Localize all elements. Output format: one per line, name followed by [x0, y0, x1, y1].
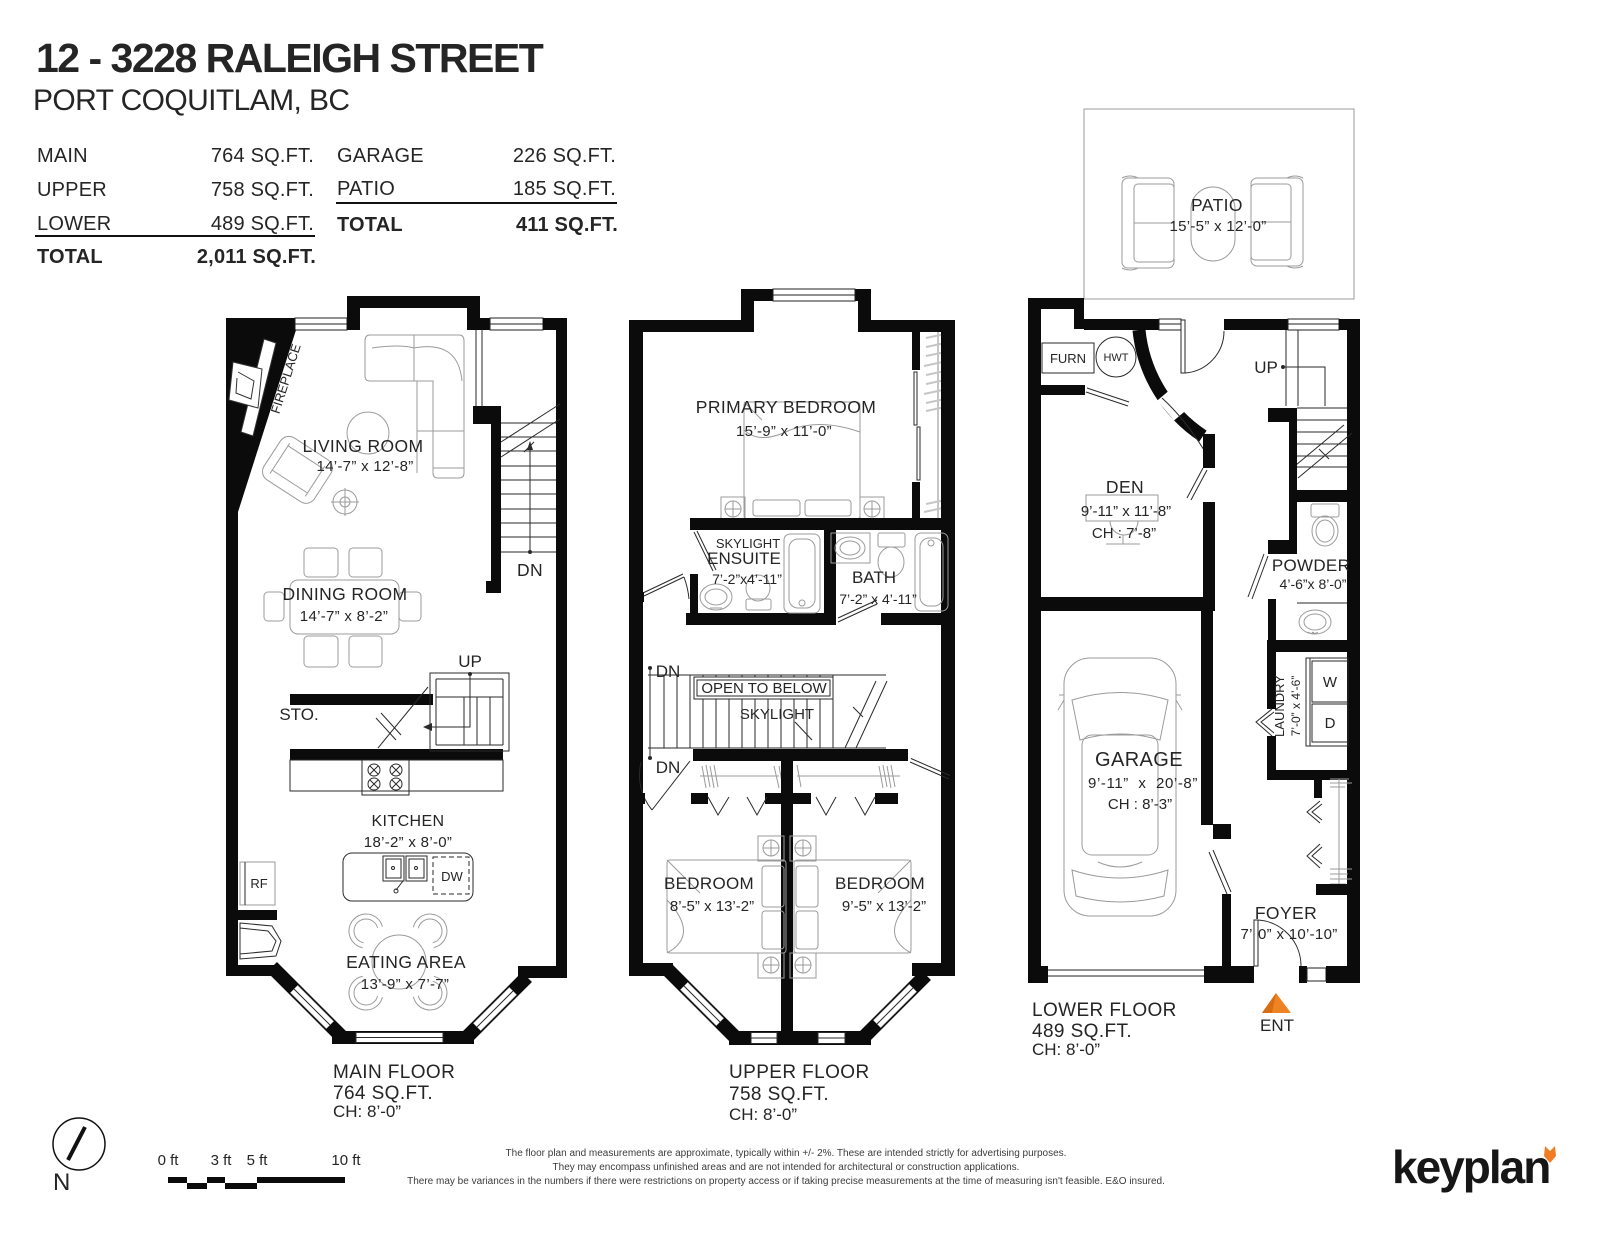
svg-text:BEDROOM: BEDROOM: [664, 874, 754, 893]
svg-text:DN: DN: [656, 662, 681, 681]
svg-text:There may be variances in the: There may be variances in the numbers if…: [407, 1176, 1165, 1187]
svg-text:8’-5” x 13’-2”: 8’-5” x 13’-2”: [670, 898, 754, 915]
svg-text:EATING AREA: EATING AREA: [346, 952, 466, 972]
svg-text:764 SQ.FT.: 764 SQ.FT.: [211, 145, 314, 167]
svg-text:15’-9” x 11’-0”: 15’-9” x 11’-0”: [736, 423, 832, 440]
svg-text:UP: UP: [1254, 358, 1278, 377]
svg-text:489 SQ.FT.: 489 SQ.FT.: [211, 213, 314, 235]
svg-text:POWDER: POWDER: [1272, 556, 1350, 575]
svg-text:15’-5” x 12’-0”: 15’-5” x 12’-0”: [1169, 218, 1266, 235]
svg-text:7’-2” x 4’-11”: 7’-2” x 4’-11”: [839, 591, 917, 607]
svg-text:PATIO: PATIO: [1191, 195, 1243, 215]
svg-text:10 ft: 10 ft: [331, 1152, 361, 1169]
svg-text:9’-11” x 11’-8”: 9’-11” x 11’-8”: [1081, 503, 1171, 520]
svg-text:N: N: [53, 1169, 70, 1196]
svg-text:BATH: BATH: [852, 568, 896, 587]
svg-text:LIVING ROOM: LIVING ROOM: [302, 436, 423, 456]
svg-text:LAUNDRY: LAUNDRY: [1272, 675, 1287, 737]
svg-text:DINING ROOM: DINING ROOM: [283, 584, 408, 604]
svg-text:MAIN: MAIN: [37, 145, 88, 167]
svg-text:758 SQ.FT.: 758 SQ.FT.: [729, 1084, 829, 1105]
svg-text:CH: 8’-0”: CH: 8’-0”: [729, 1105, 797, 1124]
svg-text:LOWER: LOWER: [37, 213, 111, 235]
svg-text:UP: UP: [458, 652, 482, 671]
svg-text:185 SQ.FT.: 185 SQ.FT.: [513, 178, 616, 200]
svg-text:SKYLIGHT: SKYLIGHT: [740, 706, 814, 723]
svg-text:BEDROOM: BEDROOM: [835, 874, 925, 893]
svg-text:OPEN TO BELOW: OPEN TO BELOW: [701, 680, 827, 697]
svg-text:CH: 8’-0”: CH: 8’-0”: [1032, 1040, 1100, 1059]
svg-text:FURN: FURN: [1050, 351, 1086, 366]
svg-text:UPPER FLOOR: UPPER FLOOR: [729, 1062, 870, 1083]
svg-text:5 ft: 5 ft: [247, 1152, 269, 1169]
svg-text:3 ft: 3 ft: [211, 1152, 233, 1169]
svg-text:18’-2” x 8’-0”: 18’-2” x 8’-0”: [364, 834, 452, 851]
svg-text:226 SQ.FT.: 226 SQ.FT.: [513, 145, 616, 167]
svg-text:ENSUITE: ENSUITE: [707, 549, 781, 568]
svg-text:GARAGE: GARAGE: [337, 145, 424, 167]
svg-text:758 SQ.FT.: 758 SQ.FT.: [211, 179, 314, 201]
svg-text:CH : 7’-8”: CH : 7’-8”: [1092, 525, 1156, 542]
svg-text:7’-0” x 4’-6”: 7’-0” x 4’-6”: [1289, 676, 1303, 737]
svg-text:PRIMARY BEDROOM: PRIMARY BEDROOM: [696, 397, 876, 417]
svg-text:MAIN FLOOR: MAIN FLOOR: [333, 1062, 455, 1083]
svg-text:2,011 SQ.FT.: 2,011 SQ.FT.: [197, 246, 316, 268]
svg-text:14’-7” x 8’-2”: 14’-7” x 8’-2”: [300, 608, 388, 625]
svg-text:TOTAL: TOTAL: [337, 214, 403, 236]
svg-text:0 ft: 0 ft: [158, 1152, 180, 1169]
svg-text:14’-7” x 12’-8”: 14’-7” x 12’-8”: [316, 458, 413, 475]
svg-text:CH: 8’-0”: CH: 8’-0”: [333, 1102, 401, 1121]
svg-text:GARAGE: GARAGE: [1095, 749, 1183, 771]
svg-text:D: D: [1325, 715, 1336, 732]
svg-text:W: W: [1323, 674, 1338, 691]
svg-text:12 - 3228 RALEIGH STREET: 12 - 3228 RALEIGH STREET: [36, 35, 544, 81]
svg-text:13’-9” x 7’-7”: 13’-9” x 7’-7”: [361, 976, 449, 993]
svg-text:DN: DN: [656, 758, 681, 777]
svg-text:DN: DN: [517, 560, 543, 580]
svg-text:HWT: HWT: [1103, 352, 1128, 364]
svg-text:TOTAL: TOTAL: [37, 246, 103, 268]
svg-text:FOYER: FOYER: [1255, 903, 1317, 923]
svg-text:LOWER FLOOR: LOWER FLOOR: [1032, 1000, 1177, 1021]
svg-text:PATIO: PATIO: [337, 178, 395, 200]
svg-text:489 SQ.FT.: 489 SQ.FT.: [1032, 1021, 1132, 1042]
svg-text:They may encompass unfinished: They may encompass unfinished areas and …: [553, 1162, 1020, 1173]
svg-text:UPPER: UPPER: [37, 179, 107, 201]
svg-text:ENT: ENT: [1260, 1016, 1294, 1035]
svg-text:411 SQ.FT.: 411 SQ.FT.: [516, 214, 618, 236]
svg-text:keyplan: keyplan: [1392, 1141, 1549, 1193]
svg-text:DW: DW: [441, 869, 463, 884]
svg-text:4’-6”x 8’-0”: 4’-6”x 8’-0”: [1280, 576, 1347, 592]
svg-text:9’-11” x 20’-8”: 9’-11” x 20’-8”: [1088, 775, 1198, 792]
svg-text:STO.: STO.: [279, 705, 318, 724]
svg-text:764 SQ.FT.: 764 SQ.FT.: [333, 1083, 433, 1104]
svg-text:CH : 8’-3”: CH : 8’-3”: [1108, 796, 1172, 813]
svg-text:PORT COQUITLAM, BC: PORT COQUITLAM, BC: [33, 84, 349, 117]
svg-text:7’-2”x4’-11”: 7’-2”x4’-11”: [712, 571, 782, 587]
svg-text:9’-5” x 13’-2”: 9’-5” x 13’-2”: [842, 898, 926, 915]
svg-text:KITCHEN: KITCHEN: [371, 813, 444, 830]
svg-text:RF: RF: [250, 876, 267, 891]
svg-text:The floor plan and measurement: The floor plan and measurements are appr…: [506, 1148, 1067, 1159]
svg-text:DEN: DEN: [1106, 477, 1144, 497]
